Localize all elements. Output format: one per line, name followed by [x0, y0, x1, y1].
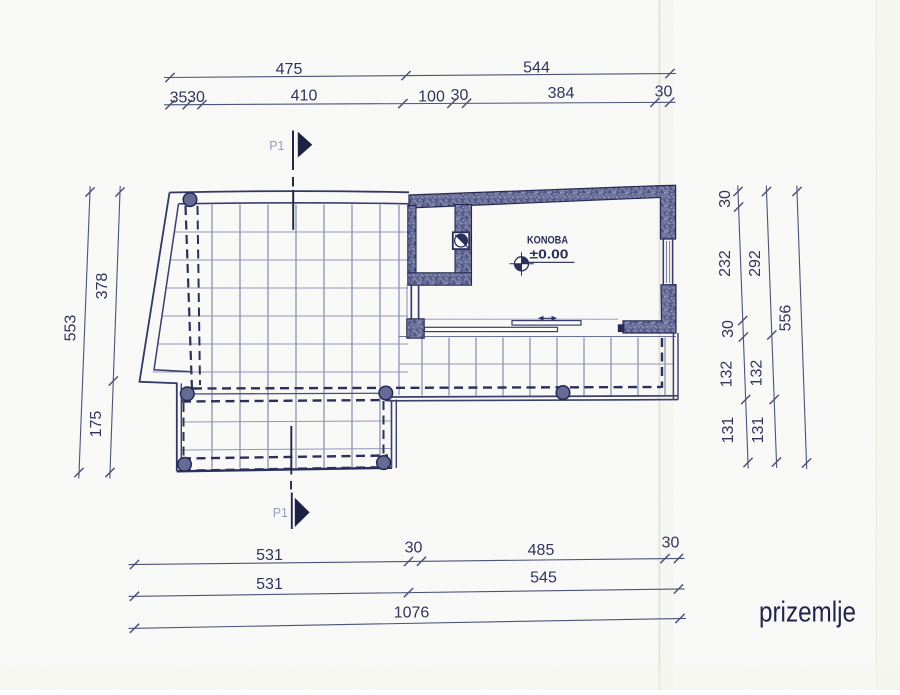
- svg-text:30: 30: [405, 540, 423, 557]
- svg-text:132: 132: [719, 361, 736, 388]
- svg-text:35: 35: [170, 89, 188, 106]
- svg-text:P1: P1: [269, 139, 284, 153]
- svg-text:292: 292: [747, 250, 764, 277]
- svg-text:132: 132: [749, 360, 766, 387]
- svg-text:485: 485: [528, 542, 555, 559]
- svg-text:232: 232: [717, 250, 734, 277]
- svg-text:30: 30: [655, 84, 673, 101]
- svg-text:30: 30: [662, 535, 680, 552]
- svg-text:30: 30: [720, 320, 737, 338]
- svg-text:384: 384: [548, 85, 575, 102]
- svg-text:±0.00: ±0.00: [530, 247, 569, 262]
- svg-text:100: 100: [418, 88, 445, 105]
- svg-text:prizemlje: prizemlje: [759, 597, 856, 629]
- svg-text:131: 131: [720, 417, 737, 444]
- svg-text:131: 131: [750, 417, 767, 444]
- svg-text:30: 30: [187, 89, 205, 106]
- svg-text:30: 30: [451, 87, 469, 104]
- svg-text:544: 544: [523, 60, 550, 77]
- svg-text:545: 545: [530, 570, 557, 587]
- svg-text:378: 378: [94, 273, 111, 300]
- svg-text:531: 531: [256, 576, 283, 593]
- svg-text:531: 531: [256, 547, 283, 564]
- svg-text:1076: 1076: [394, 605, 430, 622]
- svg-text:KONOBA: KONOBA: [527, 235, 568, 247]
- svg-text:30: 30: [717, 190, 734, 208]
- svg-text:410: 410: [291, 88, 318, 105]
- svg-text:175: 175: [88, 411, 105, 438]
- svg-text:P1: P1: [273, 506, 288, 520]
- svg-text:556: 556: [778, 305, 795, 332]
- svg-text:553: 553: [63, 315, 80, 342]
- svg-text:475: 475: [276, 61, 303, 78]
